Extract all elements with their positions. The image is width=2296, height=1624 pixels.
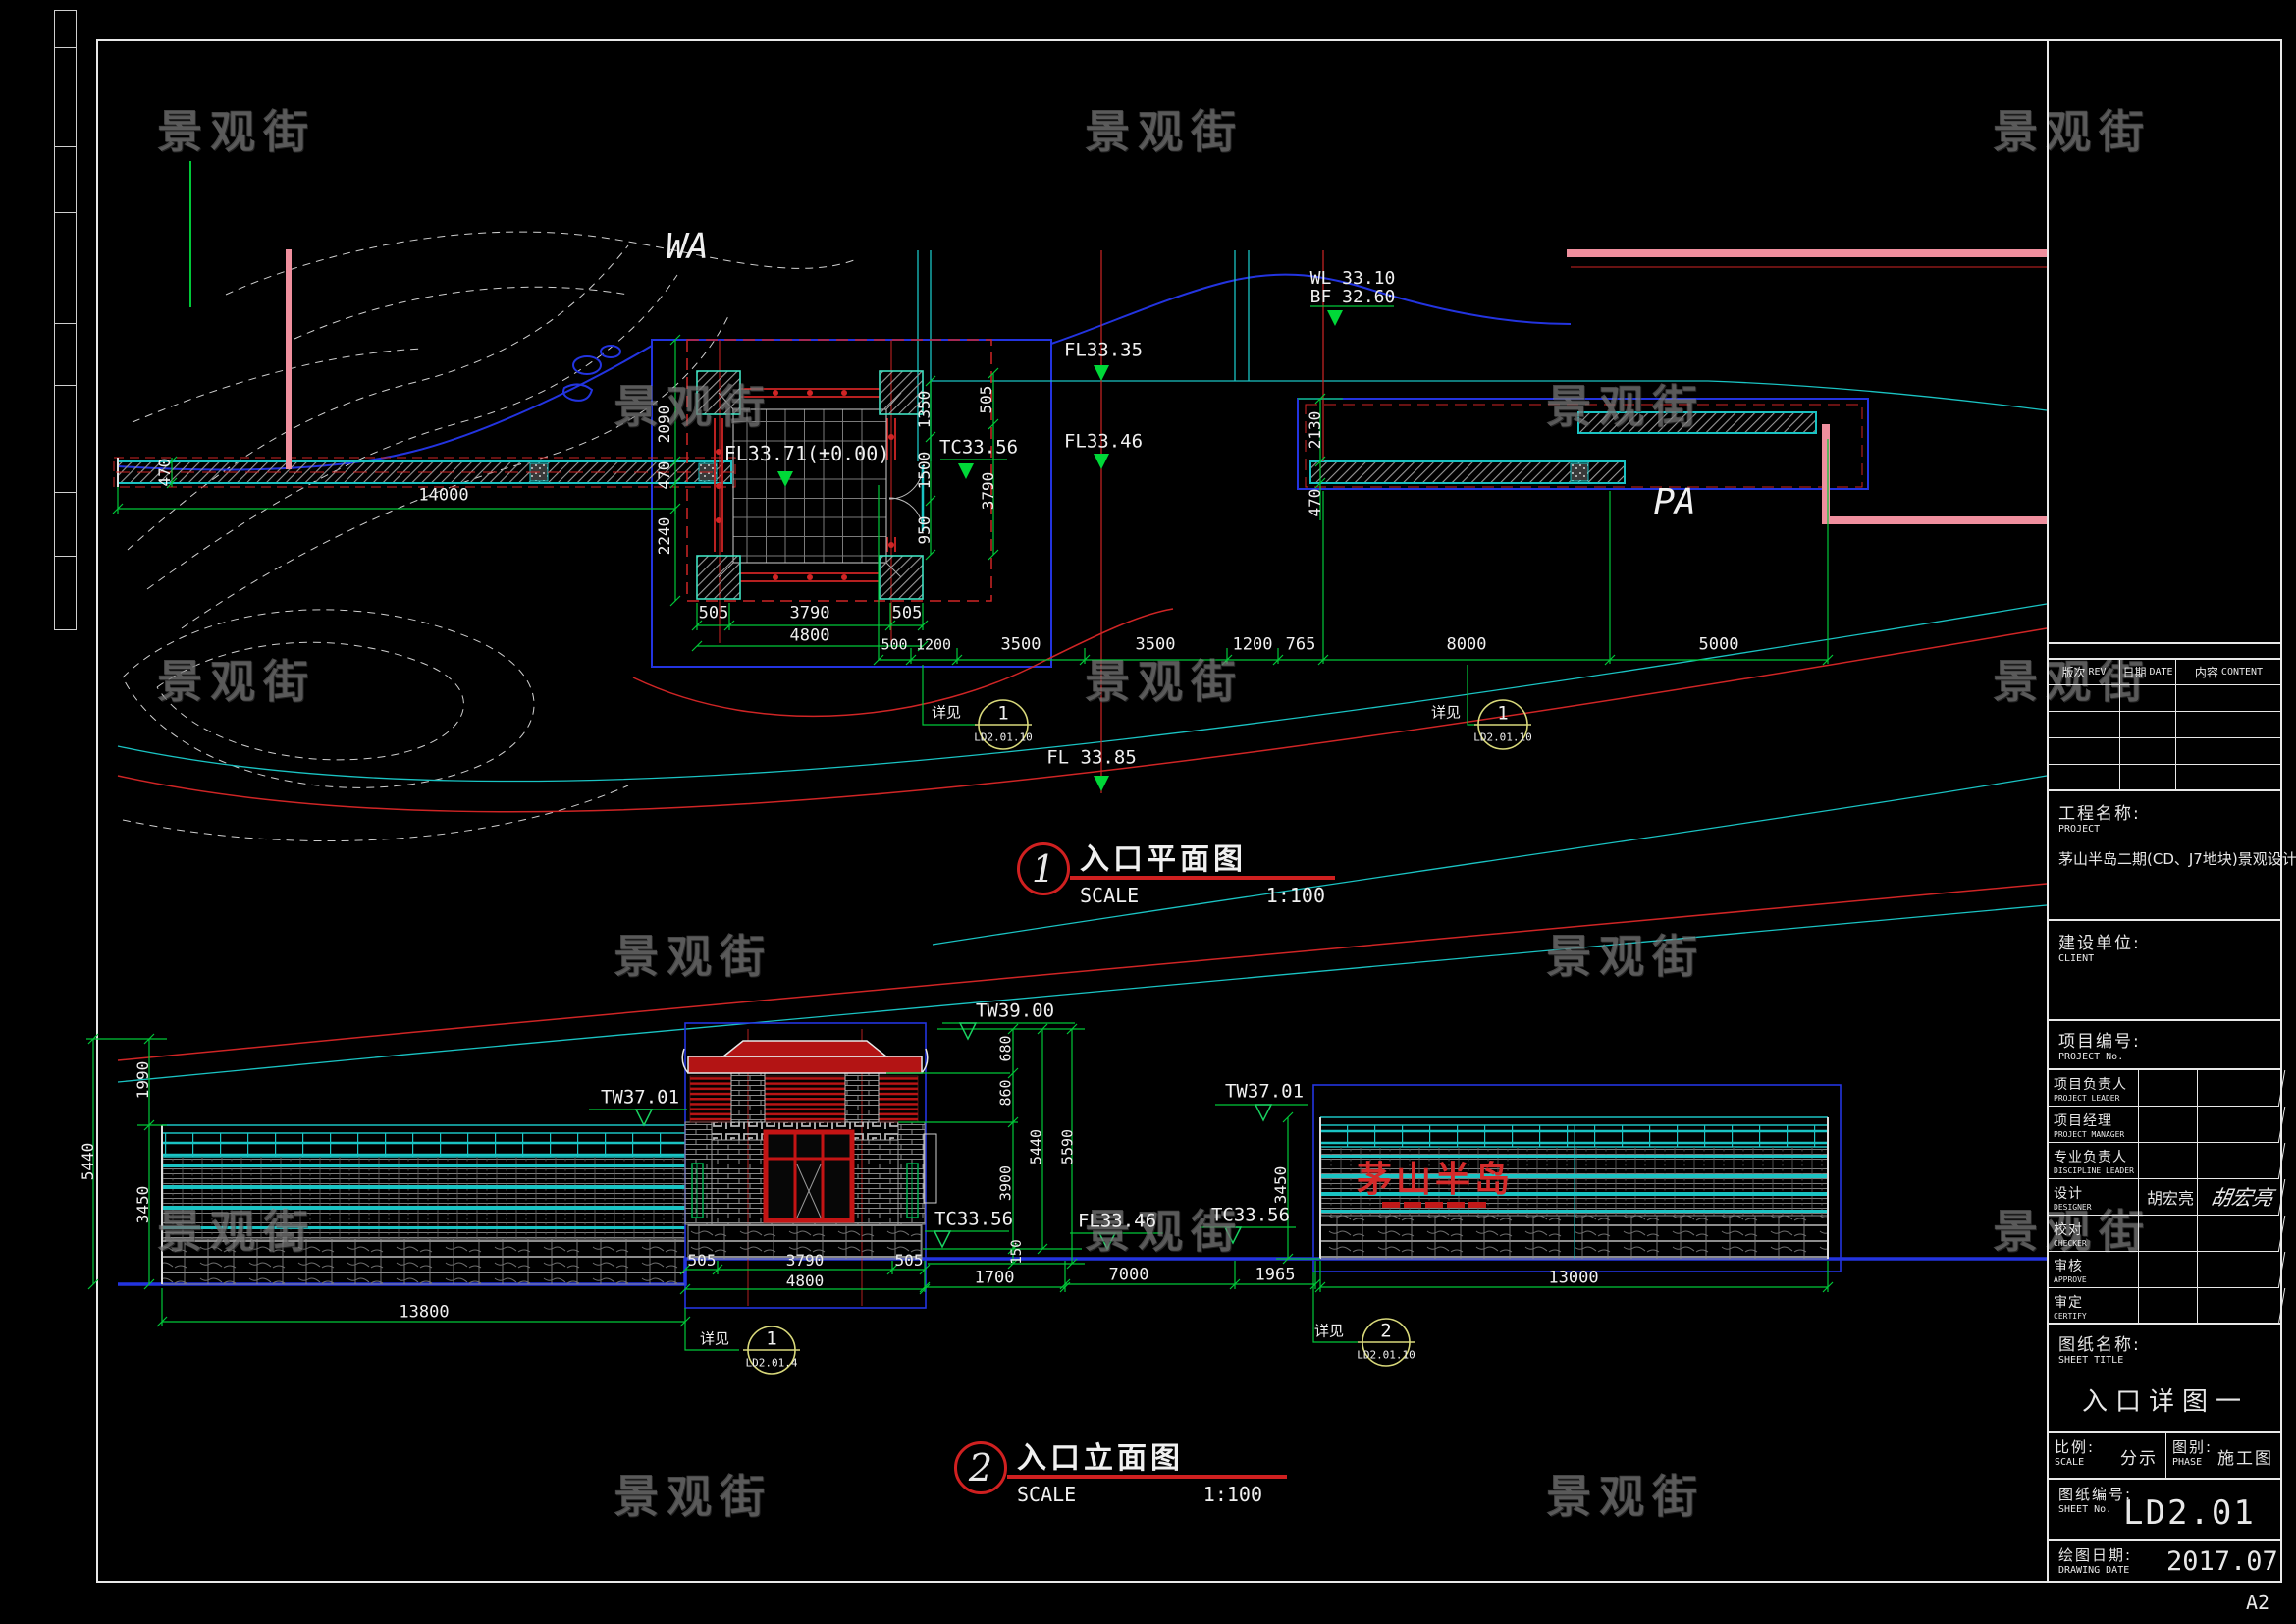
- sheet-title: 入口详图一: [2058, 1381, 2272, 1418]
- paper-size-label: A2: [2246, 1591, 2269, 1614]
- client-label: 建设单位:: [2058, 929, 2272, 953]
- view-title-elevation: 2 入口立面图 SCALE1:100: [954, 1434, 1288, 1512]
- role-label-cell: 专业负责人DISCIPLINE LEADER: [2049, 1143, 2139, 1179]
- drawing-date: 2017.07: [2166, 1546, 2278, 1577]
- role-row: 项目经理PROJECT MANAGER: [2049, 1107, 2282, 1143]
- view-name: 入口平面图: [1080, 835, 1247, 878]
- phase-value: 施工图: [2217, 1444, 2273, 1469]
- revision-row: [2049, 685, 2282, 712]
- revision-row: [2049, 712, 2282, 738]
- role-label: 设计: [2054, 1183, 2138, 1203]
- role-label: 项目经理: [2054, 1110, 2138, 1130]
- role-name-cell: [2139, 1216, 2198, 1252]
- role-row: 校对CHECKER: [2049, 1216, 2282, 1252]
- role-name-cell: [2139, 1070, 2198, 1107]
- drawing-canvas: [0, 0, 2296, 1624]
- title-underline: [1007, 1475, 1287, 1479]
- role-row: 审核APPROVE: [2049, 1252, 2282, 1288]
- title-block: 版次REV 日期DATE 内容CONTENT 工程名称: PROJECT 茅山半…: [2047, 39, 2282, 1583]
- role-signature-cell: [2195, 1143, 2286, 1179]
- scale-value: 分示: [2120, 1444, 2158, 1469]
- client-label-en: CLIENT: [2058, 953, 2272, 964]
- content-col-label-en: CONTENT: [2221, 667, 2263, 677]
- view-name: 入口立面图: [1017, 1434, 1184, 1477]
- date-section: 绘图日期: DRAWING DATE 2017.07: [2049, 1541, 2282, 1583]
- scale-cell: 比例: SCALE 分示: [2049, 1433, 2166, 1478]
- role-label-cell: 项目经理PROJECT MANAGER: [2049, 1107, 2139, 1143]
- role-name-cell: [2139, 1143, 2198, 1179]
- project-name: 茅山半岛二期(CD、J7地块)景观设计: [2058, 848, 2272, 869]
- roles-table: 项目负责人PROJECT LEADER项目经理PROJECT MANAGER专业…: [2049, 1070, 2282, 1325]
- rev-col-label-en: REV: [2088, 667, 2106, 677]
- view-number: 2: [969, 1446, 992, 1489]
- role-label-en: DISCIPLINE LEADER: [2054, 1166, 2138, 1175]
- revision-header: 版次REV 日期DATE 内容CONTENT: [2049, 660, 2282, 685]
- role-label-en: CHECKER: [2054, 1239, 2138, 1248]
- role-label-en: PROJECT LEADER: [2054, 1094, 2138, 1103]
- title-underline: [1070, 876, 1335, 880]
- date-col-label: 日期: [2122, 664, 2146, 680]
- role-label-cell: 审定CERTIFY: [2049, 1288, 2139, 1325]
- revision-row: [2049, 738, 2282, 765]
- date-col-label-en: DATE: [2149, 667, 2172, 677]
- role-label: 项目负责人: [2054, 1074, 2138, 1094]
- role-label-en: DESIGNER: [2054, 1203, 2138, 1212]
- role-label-cell: 校对CHECKER: [2049, 1216, 2139, 1252]
- sheet-title-label-en: SHEET TITLE: [2058, 1355, 2272, 1366]
- left-wall-elevation: [162, 1125, 685, 1284]
- role-label: 专业负责人: [2054, 1147, 2138, 1166]
- role-row: 专业负责人DISCIPLINE LEADER: [2049, 1143, 2282, 1179]
- project-no-label-en: PROJECT No.: [2058, 1052, 2272, 1062]
- scale-phase-section: 比例: SCALE 分示 图别: PHASE 施工图: [2049, 1433, 2282, 1480]
- project-section: 工程名称: PROJECT 茅山半岛二期(CD、J7地块)景观设计: [2049, 791, 2282, 921]
- view-number-circle: 1: [1017, 842, 1070, 895]
- scale-label: SCALE: [1080, 884, 1139, 907]
- titleblock-strip: [2049, 644, 2282, 660]
- role-name-cell: [2139, 1288, 2198, 1325]
- role-label-cell: 审核APPROVE: [2049, 1252, 2139, 1288]
- view-title-plan: 1 入口平面图 SCALE1:100: [1017, 835, 1351, 913]
- road-edges: [118, 250, 2047, 1082]
- sheet-title-section: 图纸名称: SHEET TITLE 入口详图一: [2049, 1325, 2282, 1433]
- role-row: 审定CERTIFY: [2049, 1288, 2282, 1325]
- project-no-label: 项目编号:: [2058, 1027, 2272, 1052]
- view-number: 1: [1032, 847, 1055, 891]
- role-label-cell: 设计DESIGNER: [2049, 1179, 2139, 1216]
- scale-value: 1:100: [1266, 884, 1325, 907]
- role-signature-cell: [2195, 1107, 2286, 1143]
- gate-pavilion-plan: [697, 371, 923, 599]
- role-signature-cell: [2195, 1288, 2286, 1325]
- project-label-en: PROJECT: [2058, 824, 2272, 835]
- role-label-cell: 项目负责人PROJECT LEADER: [2049, 1070, 2139, 1107]
- sheet-number: LD2.01: [2123, 1493, 2256, 1533]
- gate-house-elevation: [682, 1023, 936, 1308]
- role-label: 审核: [2054, 1256, 2138, 1275]
- role-name-cell: [2139, 1107, 2198, 1143]
- project-no-section: 项目编号: PROJECT No.: [2049, 1021, 2282, 1070]
- role-label: 校对: [2054, 1219, 2138, 1239]
- plan-dimensions: [113, 161, 1833, 725]
- titleblock-empty-panel: [2049, 39, 2282, 644]
- scale-value: 1:100: [1203, 1483, 1262, 1506]
- sheet-title-label: 图纸名称:: [2058, 1330, 2272, 1355]
- plan-red-lines: [116, 250, 2047, 1060]
- role-signature-cell: [2195, 1216, 2286, 1252]
- role-row: 项目负责人PROJECT LEADER: [2049, 1070, 2282, 1107]
- role-label-en: APPROVE: [2054, 1275, 2138, 1284]
- role-row: 设计DESIGNER胡宏亮胡宏亮: [2049, 1179, 2282, 1216]
- role-name-cell: 胡宏亮: [2139, 1179, 2198, 1216]
- phase-cell: 图别: PHASE 施工图: [2166, 1433, 2282, 1478]
- project-label: 工程名称:: [2058, 799, 2272, 824]
- role-signature-cell: [2195, 1070, 2286, 1107]
- role-label-en: CERTIFY: [2054, 1312, 2138, 1321]
- role-label: 审定: [2054, 1292, 2138, 1312]
- sheet-no-section: 图纸编号: SHEET No. LD2.01: [2049, 1480, 2282, 1541]
- role-signature-cell: [2195, 1252, 2286, 1288]
- view-number-circle: 2: [954, 1441, 1007, 1494]
- cad-sheet: 景观街景观街景观街景观街景观街景观街景观街景观街景观街景观街景观街景观街景观街景…: [0, 0, 2296, 1624]
- revision-row: [2049, 765, 2282, 791]
- content-col-label: 内容: [2195, 664, 2218, 680]
- client-section: 建设单位: CLIENT: [2049, 921, 2282, 1021]
- role-name-cell: [2139, 1252, 2198, 1288]
- role-signature-cell: 胡宏亮: [2195, 1179, 2286, 1216]
- revision-table: 版次REV 日期DATE 内容CONTENT: [2049, 660, 2282, 791]
- role-label-en: PROJECT MANAGER: [2054, 1130, 2138, 1139]
- scale-label: SCALE: [1017, 1483, 1076, 1506]
- right-wall-elevation: [1313, 1085, 1841, 1272]
- rev-col-label: 版次: [2061, 664, 2085, 680]
